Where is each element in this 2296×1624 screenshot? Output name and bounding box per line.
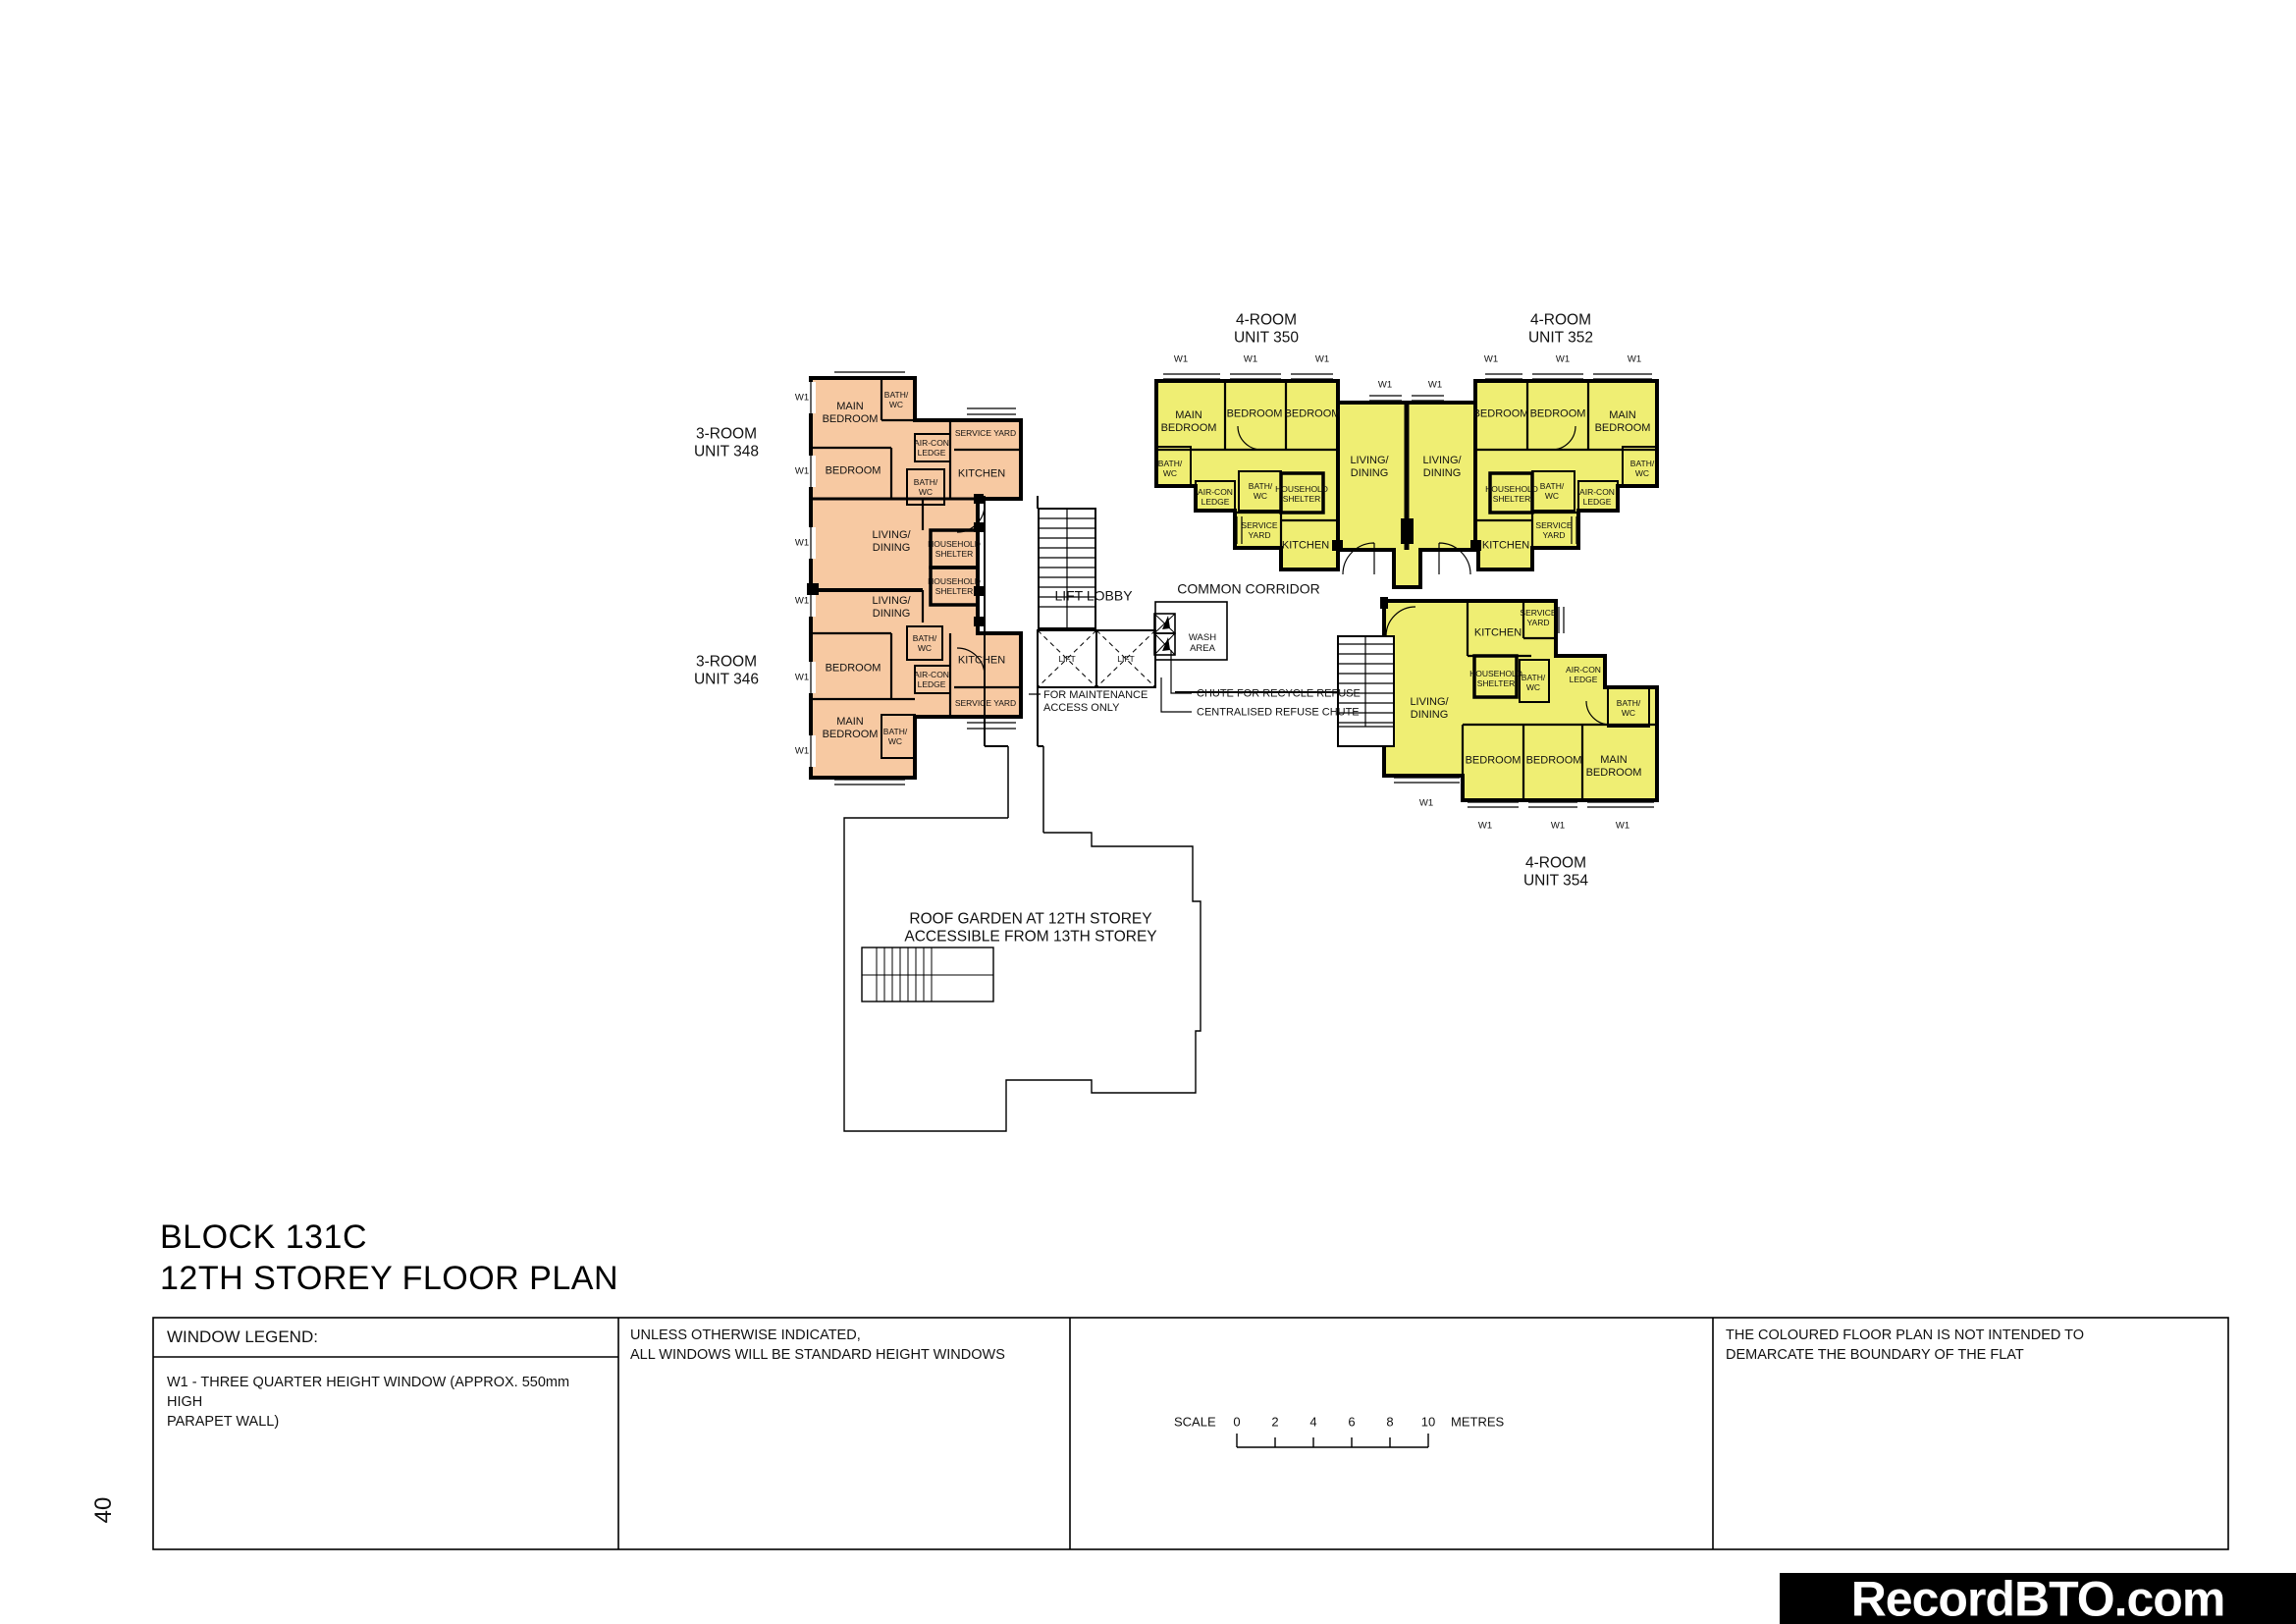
window-marker-w1: W1 — [1174, 353, 1188, 364]
window-marker-w1: W1 — [1378, 379, 1392, 390]
page-title-storey: 12TH STOREY FLOOR PLAN — [160, 1259, 618, 1298]
room-label-bedroom: BEDROOM — [1466, 755, 1522, 768]
room-label-bedroom: BEDROOM — [826, 663, 881, 676]
room-label-bedroom: BEDROOM — [1530, 408, 1586, 421]
room-label-bedroom: BEDROOM — [1473, 408, 1529, 421]
page-number: 40 — [90, 1497, 118, 1524]
scale-label: SCALE — [1174, 1414, 1216, 1429]
room-label-bath-wc: BATH/ WC — [883, 727, 907, 746]
room-label-living-dining: LIVING/ DINING — [1422, 455, 1461, 480]
scale-tick: 4 — [1309, 1414, 1316, 1429]
room-label-kitchen: KITCHEN — [1474, 627, 1522, 640]
room-label-bedroom: BEDROOM — [1227, 408, 1283, 421]
room-label-service-yard: SERVICE YARD — [1241, 520, 1277, 540]
window-marker-w1: W1 — [795, 392, 809, 403]
room-label-main-bedroom: MAIN BEDROOM — [823, 716, 879, 741]
scale-tick: 10 — [1421, 1414, 1435, 1429]
scale-tick: 6 — [1348, 1414, 1355, 1429]
room-label-service-yard: SERVICE YARD — [1520, 608, 1556, 627]
window-marker-w1: W1 — [795, 465, 809, 476]
windows-note: UNLESS OTHERWISE INDICATED, ALL WINDOWS … — [630, 1326, 1062, 1365]
room-label-household-shelter: HOUSEHOLD SHELTER — [928, 539, 981, 559]
room-label-kitchen: KITCHEN — [958, 655, 1005, 668]
staircase-upper — [1039, 509, 1095, 628]
recycle-chute-note: CHUTE FOR RECYCLE REFUSE — [1197, 688, 1361, 701]
unit-350-352-footprint — [1156, 374, 1657, 587]
window-marker-w1: W1 — [795, 745, 809, 756]
room-label-main-bedroom: MAIN BEDROOM — [1586, 754, 1642, 780]
window-marker-w1: W1 — [795, 595, 809, 606]
lift-label: LIFT — [1117, 654, 1134, 664]
room-label-service-yard: SERVICE YARD — [955, 428, 1016, 438]
scale-unit: METRES — [1451, 1414, 1504, 1429]
room-label-aircon-ledge: AIR-CON LEDGE — [914, 438, 949, 458]
room-label-bath-wc: BATH/ WC — [1249, 481, 1272, 501]
room-label-bedroom: BEDROOM — [1285, 408, 1341, 421]
room-label-kitchen: KITCHEN — [958, 468, 1005, 481]
room-label-bath-wc: BATH/ WC — [884, 390, 908, 409]
room-label-main-bedroom: MAIN BEDROOM — [1161, 409, 1217, 435]
room-label-bath-wc: BATH/ WC — [1540, 481, 1564, 501]
floor-plan-page: 3-ROOM UNIT 348 3-ROOM UNIT 346 4-ROOM U… — [0, 0, 2296, 1624]
room-label-living-dining: LIVING/ DINING — [1350, 455, 1388, 480]
window-marker-w1: W1 — [1616, 820, 1629, 831]
coloured-plan-disclaimer: THE COLOURED FLOOR PLAN IS NOT INTENDED … — [1726, 1326, 2197, 1365]
window-marker-w1: W1 — [1315, 353, 1329, 364]
window-legend-body: W1 - THREE QUARTER HEIGHT WINDOW (APPROX… — [167, 1373, 599, 1432]
scale-bar — [1237, 1434, 1428, 1447]
window-legend-header: WINDOW LEGEND: — [167, 1327, 318, 1347]
common-corridor-label: COMMON CORRIDOR — [1177, 581, 1319, 598]
window-marker-w1: W1 — [1419, 797, 1433, 808]
room-label-aircon-ledge: AIR-CON LEDGE — [1566, 665, 1601, 684]
window-marker-w1: W1 — [1551, 820, 1565, 831]
refuse-chute-note: CENTRALISED REFUSE CHUTE — [1197, 707, 1360, 720]
unit-348-caption: 3-ROOM UNIT 348 — [694, 426, 759, 462]
lift-shafts — [1038, 630, 1155, 687]
room-label-bedroom: BEDROOM — [1526, 755, 1582, 768]
unit-350-caption: 4-ROOM UNIT 350 — [1234, 312, 1299, 349]
unit-346-caption: 3-ROOM UNIT 346 — [694, 654, 759, 690]
wash-area-label: WASH AREA — [1189, 632, 1216, 654]
room-label-living-dining: LIVING/ DINING — [872, 595, 910, 621]
window-marker-w1: W1 — [1484, 353, 1498, 364]
room-label-bath-wc: BATH/ WC — [1630, 459, 1654, 478]
room-label-main-bedroom: MAIN BEDROOM — [823, 401, 879, 426]
roof-garden-note: ROOF GARDEN AT 12TH STOREY ACCESSIBLE FR… — [904, 911, 1156, 947]
room-label-kitchen: KITCHEN — [1282, 540, 1329, 553]
room-label-aircon-ledge: AIR-CON LEDGE — [1198, 487, 1233, 507]
lift-label: LIFT — [1058, 654, 1075, 664]
scale-tick: 2 — [1271, 1414, 1278, 1429]
room-label-household-shelter: HOUSEHOLD SHELTER — [1469, 669, 1522, 688]
window-marker-w1: W1 — [795, 537, 809, 548]
room-label-bath-wc: BATH/ WC — [1522, 673, 1545, 692]
roof-garden-outline — [844, 818, 1201, 1131]
scale-tick: 0 — [1233, 1414, 1240, 1429]
scale-tick: 8 — [1386, 1414, 1393, 1429]
unit-354-caption: 4-ROOM UNIT 354 — [1523, 855, 1588, 892]
maintenance-note: FOR MAINTENANCE ACCESS ONLY — [1043, 689, 1148, 715]
room-label-bath-wc: BATH/ WC — [913, 633, 936, 653]
window-marker-w1: W1 — [1628, 353, 1641, 364]
room-label-bedroom: BEDROOM — [826, 465, 881, 478]
room-label-main-bedroom: MAIN BEDROOM — [1595, 409, 1651, 435]
room-label-household-shelter: HOUSEHOLD SHELTER — [1275, 484, 1328, 504]
room-label-household-shelter: HOUSEHOLD SHELTER — [928, 576, 981, 596]
window-marker-w1: W1 — [1428, 379, 1442, 390]
room-label-living-dining: LIVING/ DINING — [872, 529, 910, 555]
refuse-chutes — [1154, 614, 1175, 655]
room-label-service-yard: SERVICE YARD — [1535, 520, 1572, 540]
room-label-household-shelter: HOUSEHOLD SHELTER — [1485, 484, 1538, 504]
lift-lobby-label: LIFT LOBBY — [1054, 588, 1132, 605]
room-label-bath-wc: BATH/ WC — [1617, 698, 1640, 718]
page-title-block: BLOCK 131C — [160, 1218, 367, 1257]
window-marker-w1: W1 — [1556, 353, 1570, 364]
window-marker-w1: W1 — [1244, 353, 1257, 364]
window-marker-w1: W1 — [795, 672, 809, 682]
window-marker-w1: W1 — [1478, 820, 1492, 831]
watermark-text: RecordBTO.com — [1851, 1571, 2225, 1624]
room-label-service-yard: SERVICE YARD — [955, 698, 1016, 708]
room-label-bath-wc: BATH/ WC — [914, 477, 937, 497]
room-label-aircon-ledge: AIR-CON LEDGE — [914, 670, 949, 689]
unit-352-caption: 4-ROOM UNIT 352 — [1528, 312, 1593, 349]
room-label-living-dining: LIVING/ DINING — [1410, 696, 1448, 722]
room-label-kitchen: KITCHEN — [1482, 540, 1529, 553]
room-label-bath-wc: BATH/ WC — [1158, 459, 1182, 478]
room-label-aircon-ledge: AIR-CON LEDGE — [1579, 487, 1615, 507]
